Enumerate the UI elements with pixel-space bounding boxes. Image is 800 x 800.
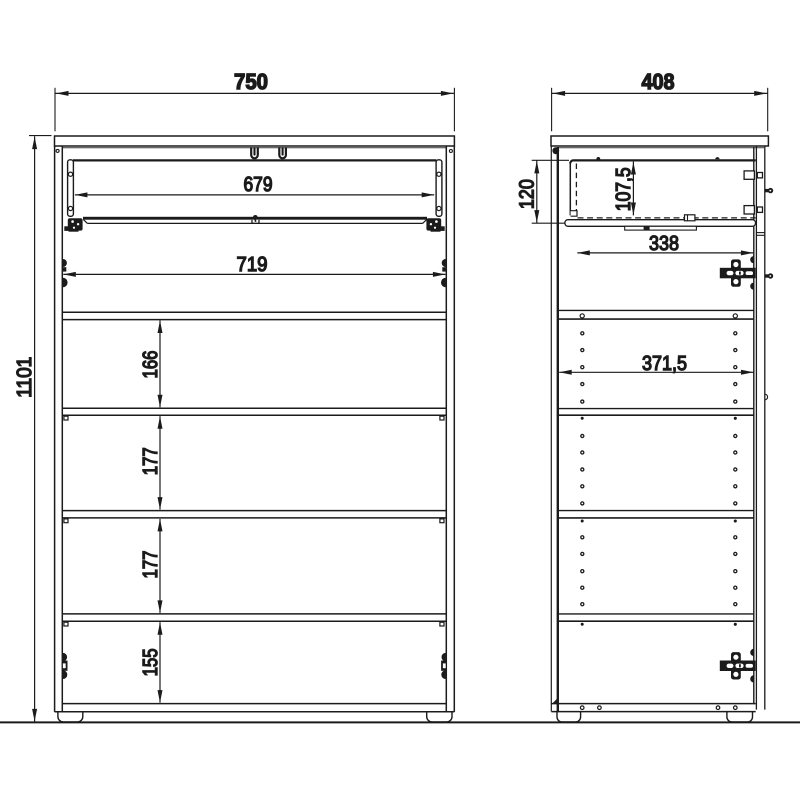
svg-text:408: 408 xyxy=(642,69,675,94)
svg-text:338: 338 xyxy=(649,232,679,255)
svg-text:155: 155 xyxy=(139,648,162,676)
svg-text:177: 177 xyxy=(139,551,162,579)
svg-text:679: 679 xyxy=(244,173,273,196)
svg-text:177: 177 xyxy=(139,447,162,475)
svg-text:120: 120 xyxy=(515,179,538,209)
svg-text:1101: 1101 xyxy=(13,357,36,398)
svg-text:166: 166 xyxy=(139,351,162,379)
svg-text:719: 719 xyxy=(237,253,268,276)
svg-text:107,5: 107,5 xyxy=(612,167,635,211)
svg-text:750: 750 xyxy=(234,69,268,94)
svg-text:371,5: 371,5 xyxy=(642,352,687,375)
